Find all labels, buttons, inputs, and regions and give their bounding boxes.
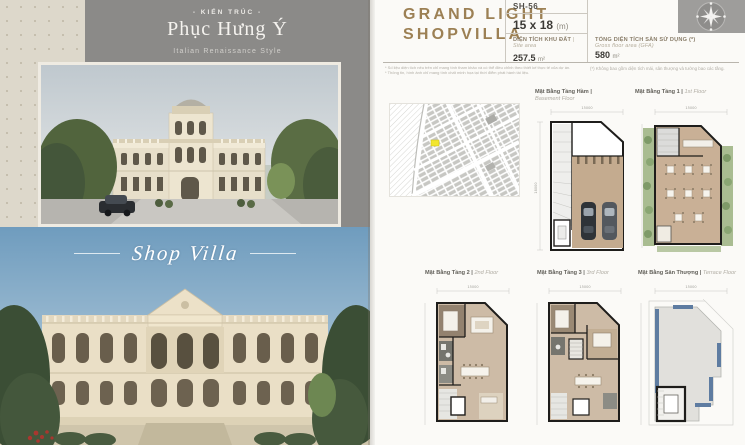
gfa-cell: TỔNG DIỆN TÍCH SÀN SỬ DỤNG (*) Gross flo… xyxy=(595,37,725,60)
floor-plan-3: 15000 xyxy=(529,281,639,445)
site-area-label: DIỆN TÍCH KHU ĐẤT | Site area xyxy=(513,37,585,49)
compass-icon xyxy=(678,0,745,33)
site-area-number: 257.5 xyxy=(513,53,536,63)
plan-label-floor1-vi: Mặt Bằng Tầng 1 | xyxy=(635,89,683,95)
caption-rule-left xyxy=(74,253,120,254)
plan-label-floor3: Mặt Bằng Tầng 3 | 3rd Floor xyxy=(537,270,647,277)
gfa-label: TỔNG DIỆN TÍCH SÀN SỬ DỤNG (*) Gross flo… xyxy=(595,37,725,49)
plan-label-floor2: Mặt Bằng Tầng 2 | 2nd Floor xyxy=(425,270,535,277)
gfa-value: 580 m² xyxy=(595,50,725,60)
shopvilla-caption-row: Shop Villa xyxy=(0,241,370,266)
gfa-unit: m² xyxy=(613,54,620,60)
villa-render-photo xyxy=(38,62,341,227)
compass-block xyxy=(678,0,745,33)
plan-label-basement-vi: Mặt Bằng Tầng Hầm | xyxy=(535,89,592,95)
svg-text:15000: 15000 xyxy=(685,285,696,289)
floor-plan-2: 15000 xyxy=(417,281,527,445)
plan-label-floor1-en: 1st Floor xyxy=(684,89,706,95)
unit-size-unit: (m) xyxy=(556,22,568,31)
site-area-value: 257.5 m² xyxy=(513,53,585,63)
site-map-illustration xyxy=(390,104,519,196)
spec-table-hline-1 xyxy=(505,13,587,14)
arch-title: Phục Hưng Ý xyxy=(85,18,370,41)
plan-label-floor2-vi: Mặt Bằng Tầng 2 | xyxy=(425,270,473,276)
villa-render-illustration xyxy=(41,65,338,224)
spec-table-vline-left xyxy=(505,0,506,62)
shopvilla-photo: Shop Villa xyxy=(0,227,370,445)
svg-text:18000: 18000 xyxy=(534,182,538,193)
svg-text:15000: 15000 xyxy=(685,106,696,110)
plan-label-terrace: Mặt Bằng Sân Thượng | Terrace Floor xyxy=(638,270,745,277)
floor-plan-1: 15000 xyxy=(633,100,745,273)
shopvilla-caption: Shop Villa xyxy=(130,241,239,266)
site-area-unit: m² xyxy=(538,57,545,63)
site-location-map xyxy=(389,103,520,197)
plan-label-terrace-en: Terrace Floor xyxy=(703,270,736,276)
plan-label-terrace-vi: Mặt Bằng Sân Thượng | xyxy=(638,270,701,276)
car-icon xyxy=(581,202,596,240)
floor-plan-basement: 15000 18000 xyxy=(531,100,637,273)
unit-size: 15 x 18 (m) xyxy=(513,18,568,32)
gfa-number: 580 xyxy=(595,50,610,60)
plan-label-floor3-vi: Mặt Bằng Tầng 3 | xyxy=(537,270,585,276)
unit-size-value: 15 x 18 xyxy=(513,18,553,32)
car-icon xyxy=(602,202,617,240)
spec-table-hline-2 xyxy=(505,33,587,34)
architecture-header: - KIẾN TRÚC - Phục Hưng Ý Italian Renais… xyxy=(85,9,370,55)
footnote-left: * Số liệu diện tích nêu trên chỉ mang tí… xyxy=(385,65,620,75)
site-area-cell: DIỆN TÍCH KHU ĐẤT | Site area 257.5 m² xyxy=(513,37,585,63)
plan-label-floor1: Mặt Bằng Tầng 1 | 1st Floor xyxy=(635,89,745,96)
spec-table-vline-mid xyxy=(587,0,588,62)
brochure-spread: - KIẾN TRÚC - Phục Hưng Ý Italian Renais… xyxy=(0,0,745,445)
arch-subtitle: Italian Renaissance Style xyxy=(85,48,370,55)
plan-label-floor3-en: 3rd Floor xyxy=(586,270,608,276)
plan-label-floor2-en: 2nd Floor xyxy=(474,270,498,276)
left-panel: - KIẾN TRÚC - Phục Hưng Ý Italian Renais… xyxy=(0,0,370,445)
footnote-left-line2: * Thông tin, hình ảnh chỉ mang tính chất… xyxy=(385,70,620,75)
caption-rule-right xyxy=(250,253,296,254)
right-panel: GRAND LIGHT SHOPVILLA SH-56 15 x 18 (m) … xyxy=(375,0,745,445)
floor-plan-terrace: 15000 xyxy=(633,281,745,445)
arch-eyebrow: - KIẾN TRÚC - xyxy=(85,9,370,16)
svg-text:15000: 15000 xyxy=(467,285,478,289)
svg-text:15000: 15000 xyxy=(579,285,590,289)
svg-text:15000: 15000 xyxy=(581,106,592,110)
highlighted-lot xyxy=(431,140,439,146)
gfa-label-en: Gross floor area (GFA) xyxy=(595,43,654,49)
footnote-right: (*) Không bao gồm diện tích mái, sân thư… xyxy=(590,66,740,71)
unit-code: SH-56 xyxy=(513,2,538,11)
